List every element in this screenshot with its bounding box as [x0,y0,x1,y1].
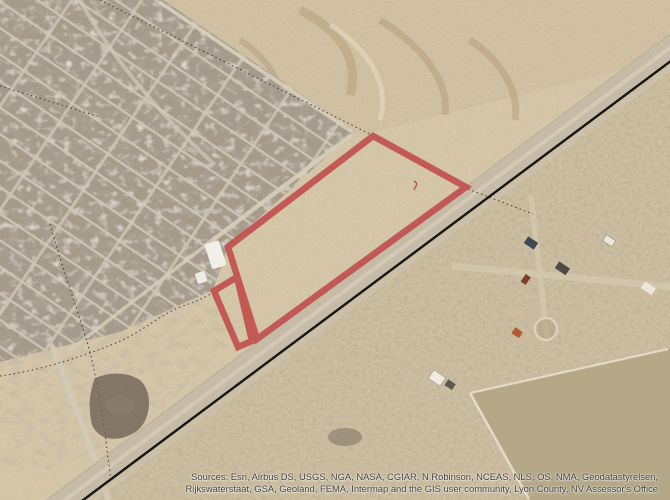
map-viewport[interactable]: Sources: Esri, Airbus DS, USGS, NGA, NAS… [0,0,670,500]
round-corral [535,318,557,340]
dark-patch-highlight [106,395,134,415]
satellite-imagery-layer [0,0,670,500]
dark-patch-bottom-middle [328,428,362,446]
